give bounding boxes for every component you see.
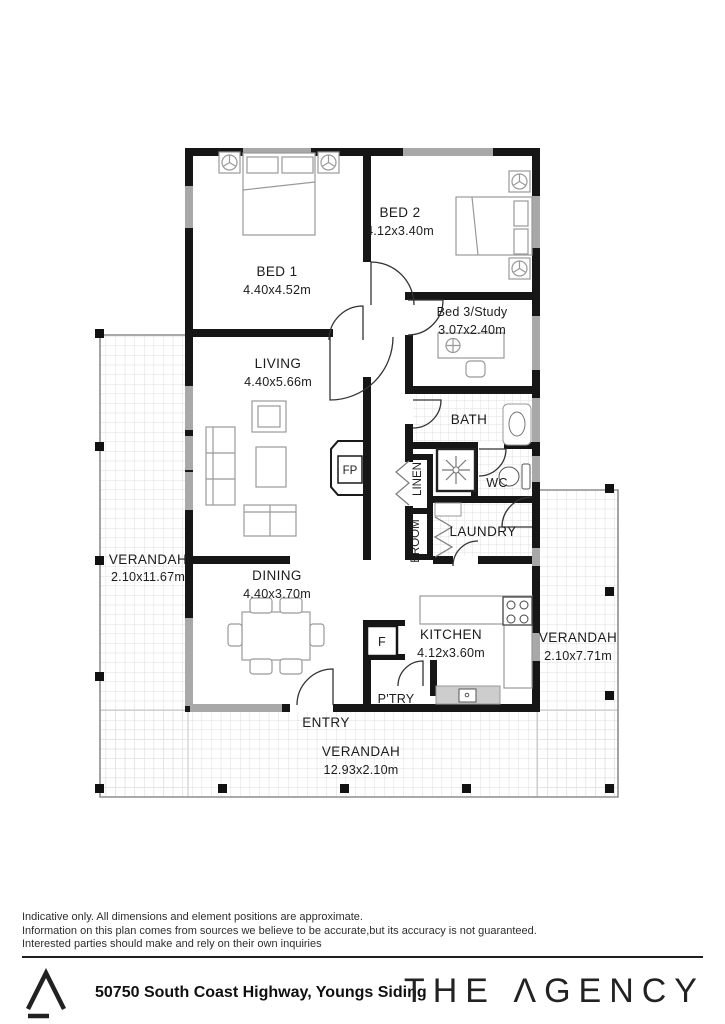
disclaimer-line-3: Interested parties should make and rely … [22,938,537,952]
room-label-bed3: Bed 3/Study [437,305,508,319]
room-label-entry: ENTRY [302,715,350,730]
fridge-label: F [378,635,386,649]
room-label-linen: LINEN [412,462,424,496]
floor-plan: BED 1 4.40x4.52m BED 2 4.12x3.40m Bed 3/… [0,0,725,905]
verandah-bottom-dims: 12.93x2.10m [323,763,398,777]
room-label-living: LIVING [255,356,302,371]
room-label-dining: DINING [252,568,302,583]
fireplace-label: FP [343,465,358,477]
entry-opening [290,704,333,712]
laundry-trough [435,503,461,516]
room-label-wc: WC [486,476,507,490]
room-label-pantry: P'TRY [378,692,415,706]
footer-brand-wordmark: THE ΛGENCY [404,972,705,1011]
verandah-right-label: VERANDAH [539,630,617,645]
room-dims-bed3: 3.07x2.40m [438,323,506,337]
room-dims-bed2: 4.12x3.40m [366,224,434,238]
disclaimer-line-1: Indicative only. All dimensions and elem… [22,911,537,925]
verandah-bottom-label: VERANDAH [322,744,400,759]
room-dims-living: 4.40x5.66m [244,375,312,389]
room-label-bed2: BED 2 [379,205,420,220]
shower [437,449,475,491]
floor-plan-page: BED 1 4.40x4.52m BED 2 4.12x3.40m Bed 3/… [0,0,725,1024]
room-label-broom: BROOM [410,519,422,562]
room-label-kitchen: KITCHEN [420,627,482,642]
verandah-right-dims: 2.10x7.71m [544,649,612,663]
agency-triangle-logo [22,966,78,1022]
disclaimer: Indicative only. All dimensions and elem… [22,911,537,952]
vanity [503,404,531,445]
kitchen-sink [436,686,500,704]
verandah-left-dims: 2.10x11.67m [111,570,185,584]
room-dims-kitchen: 4.12x3.60m [417,646,485,660]
footer-divider [22,956,703,958]
disclaimer-line-2: Information on this plan comes from sour… [22,925,537,939]
room-label-bath: BATH [451,412,488,427]
room-dims-dining: 4.40x3.70m [243,587,311,601]
room-dims-bed1: 4.40x4.52m [243,283,311,297]
stove [503,597,532,625]
footer-address: 50750 South Coast Highway, Youngs Siding [95,984,427,1002]
room-label-bed1: BED 1 [256,264,297,279]
room-label-laundry: LAUNDRY [449,524,516,539]
verandah-left-label: VERANDAH [109,552,187,567]
